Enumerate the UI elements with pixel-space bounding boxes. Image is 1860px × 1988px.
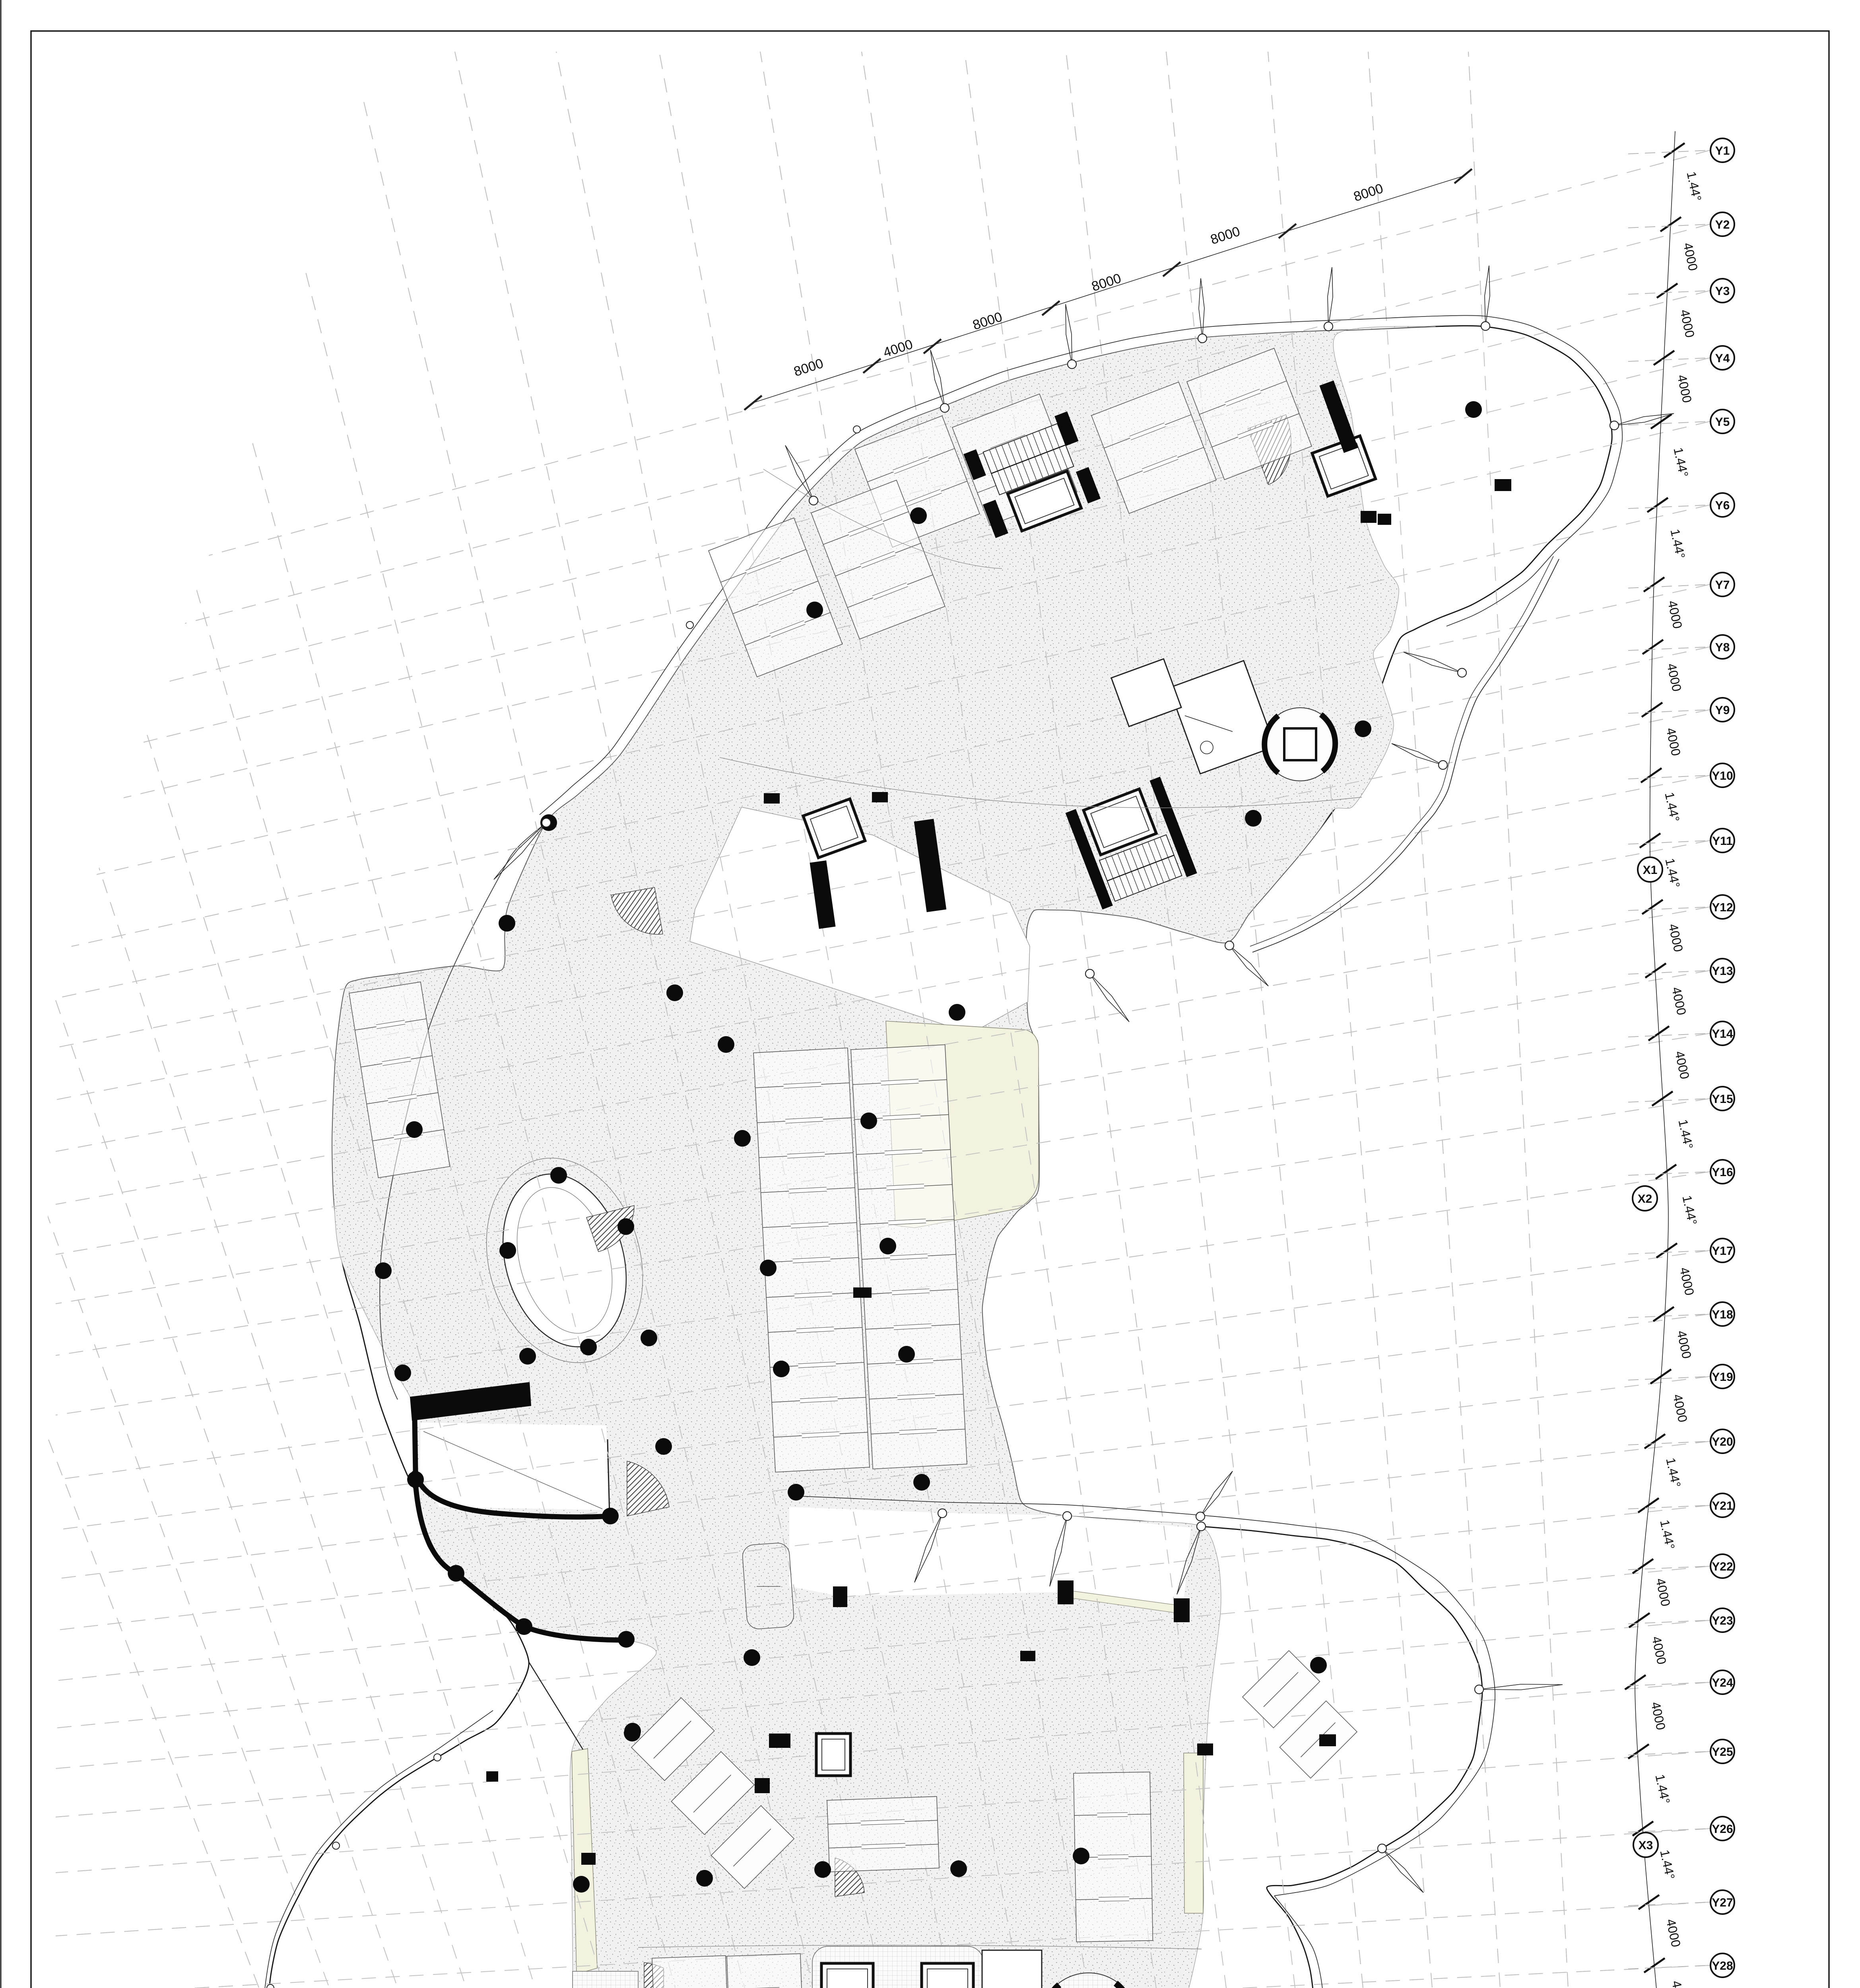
svg-text:Y24: Y24 [1712,1676,1733,1689]
svg-text:Y28: Y28 [1712,1959,1733,1972]
svg-text:Y27: Y27 [1712,1896,1733,1909]
svg-text:Y26: Y26 [1712,1823,1733,1836]
svg-text:Y22: Y22 [1712,1560,1733,1573]
svg-text:Y14: Y14 [1712,1027,1733,1041]
svg-text:Y2: Y2 [1715,218,1730,231]
svg-text:Y11: Y11 [1712,835,1733,848]
svg-text:Y4: Y4 [1715,352,1730,365]
svg-text:Y21: Y21 [1712,1499,1733,1512]
svg-text:Y12: Y12 [1712,901,1733,914]
svg-text:Y9: Y9 [1715,704,1730,717]
svg-text:X2: X2 [1638,1192,1652,1206]
svg-text:Y18: Y18 [1712,1308,1733,1321]
svg-text:Y8: Y8 [1715,641,1730,654]
svg-text:Y10: Y10 [1712,769,1733,782]
svg-text:Y7: Y7 [1715,579,1730,592]
svg-text:Y5: Y5 [1715,415,1730,429]
svg-text:Y17: Y17 [1712,1244,1733,1258]
svg-text:Y3: Y3 [1715,285,1730,298]
svg-text:Y23: Y23 [1712,1614,1733,1627]
svg-text:Y25: Y25 [1712,1745,1733,1759]
svg-text:X3: X3 [1639,1839,1653,1852]
svg-text:Y19: Y19 [1712,1371,1733,1384]
svg-text:Y6: Y6 [1715,499,1730,512]
svg-text:X1: X1 [1643,864,1658,877]
svg-text:Y13: Y13 [1712,965,1733,978]
svg-text:Y20: Y20 [1712,1435,1733,1448]
svg-text:Y15: Y15 [1712,1093,1733,1106]
svg-text:Y16: Y16 [1712,1166,1733,1179]
svg-text:Y1: Y1 [1715,144,1730,157]
